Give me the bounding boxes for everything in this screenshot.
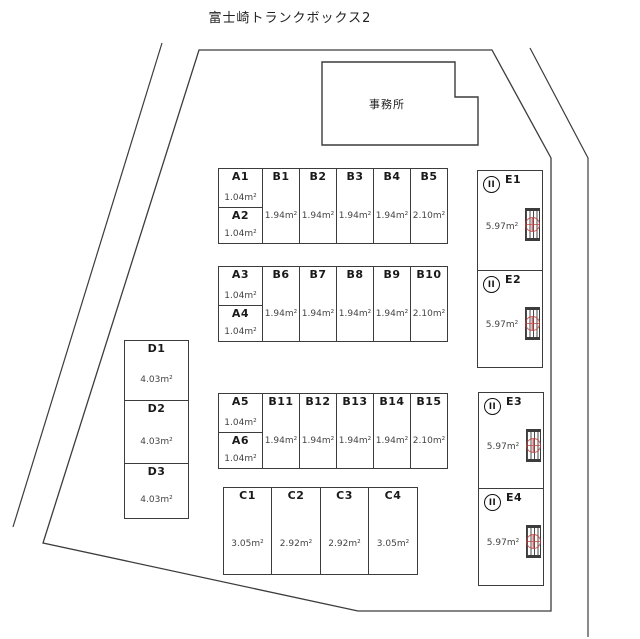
unit-id-label: E2	[505, 273, 521, 286]
unit-area-label: 1.94m²	[374, 436, 410, 446]
unit-A4: A41.04m²	[218, 305, 263, 342]
unit-id-label: D1	[125, 342, 188, 355]
unit-area-label: 1.94m²	[337, 436, 373, 446]
unit-area-label: 4.03m²	[125, 437, 188, 447]
unit-area-label: 1.94m²	[263, 309, 299, 319]
unit-D3: D34.03m²	[124, 463, 189, 519]
unit-E2: E25.97m²II	[477, 270, 543, 368]
unit-area-label: 3.05m²	[224, 539, 271, 549]
unit-id-label: B8	[337, 268, 373, 281]
unit-id-label: B4	[374, 170, 410, 183]
unit-B1: B11.94m²	[262, 168, 300, 244]
unit-id-label: C1	[224, 489, 271, 502]
unit-id-label: B3	[337, 170, 373, 183]
unit-B15: B152.10m²	[410, 393, 448, 469]
unit-id-label: B10	[411, 268, 447, 281]
unit-area-label: 5.97m²	[483, 442, 523, 452]
red-stamp-icon	[525, 316, 540, 331]
unit-area-label: 1.94m²	[300, 211, 336, 221]
unit-id-label: B11	[263, 395, 299, 408]
unit-B14: B141.94m²	[373, 393, 411, 469]
unit-id-label: B5	[411, 170, 447, 183]
unit-id-label: B9	[374, 268, 410, 281]
unit-area-label: 5.97m²	[482, 320, 522, 330]
unit-id-label: E4	[506, 491, 522, 504]
unit-B7: B71.94m²	[299, 266, 337, 342]
unit-id-label: A4	[219, 307, 262, 320]
unit-id-label: B12	[300, 395, 336, 408]
unit-B3: B31.94m²	[336, 168, 374, 244]
unit-B13: B131.94m²	[336, 393, 374, 469]
unit-area-label: 2.92m²	[321, 539, 368, 549]
unit-id-label: E1	[505, 173, 521, 186]
unit-B11: B111.94m²	[262, 393, 300, 469]
unit-area-label: 2.92m²	[272, 539, 320, 549]
unit-id-label: A5	[219, 395, 262, 408]
red-stamp-icon	[525, 217, 540, 232]
unit-area-label: 1.94m²	[337, 211, 373, 221]
unit-id-label: B7	[300, 268, 336, 281]
unit-area-label: 1.04m²	[219, 327, 262, 337]
unit-A1: A11.04m²	[218, 168, 263, 208]
unit-area-label: 1.94m²	[300, 309, 336, 319]
unit-B9: B91.94m²	[373, 266, 411, 342]
unit-id-label: A6	[219, 434, 262, 447]
unit-id-label: B2	[300, 170, 336, 183]
circle-II-icon: II	[483, 176, 500, 193]
unit-C1: C13.05m²	[223, 487, 272, 575]
unit-id-label: C2	[272, 489, 320, 502]
unit-area-label: 2.10m²	[411, 436, 447, 446]
circle-II-icon: II	[483, 276, 500, 293]
unit-E1: E15.97m²II	[477, 170, 543, 271]
unit-area-label: 1.04m²	[219, 193, 262, 203]
unit-area-label: 2.10m²	[411, 211, 447, 221]
red-stamp-icon	[526, 534, 541, 549]
site-plan: 富士崎トランクボックス2 事務所 A11.04m²A21.04m²B11.94m…	[0, 0, 640, 639]
unit-D2: D24.03m²	[124, 400, 189, 464]
unit-id-label: B13	[337, 395, 373, 408]
unit-C4: C43.05m²	[368, 487, 418, 575]
office-label: 事務所	[342, 96, 432, 112]
unit-area-label: 1.94m²	[263, 436, 299, 446]
unit-area-label: 1.04m²	[219, 291, 262, 301]
unit-area-label: 5.97m²	[482, 222, 522, 232]
circle-II-icon: II	[484, 494, 501, 511]
unit-id-label: D2	[125, 402, 188, 415]
unit-B6: B61.94m²	[262, 266, 300, 342]
unit-area-label: 1.94m²	[263, 211, 299, 221]
unit-id-label: B1	[263, 170, 299, 183]
unit-B2: B21.94m²	[299, 168, 337, 244]
unit-area-label: 1.94m²	[300, 436, 336, 446]
unit-area-label: 4.03m²	[125, 375, 188, 385]
unit-id-label: A1	[219, 170, 262, 183]
unit-area-label: 5.97m²	[483, 538, 523, 548]
unit-B4: B41.94m²	[373, 168, 411, 244]
unit-id-label: D3	[125, 465, 188, 478]
unit-C3: C32.92m²	[320, 487, 369, 575]
unit-area-label: 2.10m²	[411, 309, 447, 319]
unit-A3: A31.04m²	[218, 266, 263, 306]
unit-area-label: 1.04m²	[219, 454, 262, 464]
unit-area-label: 4.03m²	[125, 495, 188, 505]
unit-area-label: 3.05m²	[369, 539, 417, 549]
red-stamp-icon	[526, 438, 541, 453]
unit-area-label: 1.04m²	[219, 418, 262, 428]
unit-B5: B52.10m²	[410, 168, 448, 244]
unit-C2: C22.92m²	[271, 487, 321, 575]
unit-id-label: E3	[506, 395, 522, 408]
circle-II-icon: II	[484, 398, 501, 415]
unit-id-label: B6	[263, 268, 299, 281]
unit-B12: B121.94m²	[299, 393, 337, 469]
unit-A6: A61.04m²	[218, 432, 263, 469]
unit-area-label: 1.94m²	[374, 309, 410, 319]
unit-id-label: C4	[369, 489, 417, 502]
unit-B8: B81.94m²	[336, 266, 374, 342]
unit-A2: A21.04m²	[218, 207, 263, 244]
unit-id-label: B15	[411, 395, 447, 408]
unit-E3: E35.97m²II	[478, 392, 544, 489]
unit-area-label: 1.94m²	[337, 309, 373, 319]
unit-area-label: 1.04m²	[219, 229, 262, 239]
unit-D1: D14.03m²	[124, 340, 189, 401]
unit-A5: A51.04m²	[218, 393, 263, 433]
unit-id-label: B14	[374, 395, 410, 408]
unit-id-label: A3	[219, 268, 262, 281]
unit-id-label: C3	[321, 489, 368, 502]
unit-area-label: 1.94m²	[374, 211, 410, 221]
unit-E4: E45.97m²II	[478, 488, 544, 586]
unit-id-label: A2	[219, 209, 262, 222]
unit-B10: B102.10m²	[410, 266, 448, 342]
